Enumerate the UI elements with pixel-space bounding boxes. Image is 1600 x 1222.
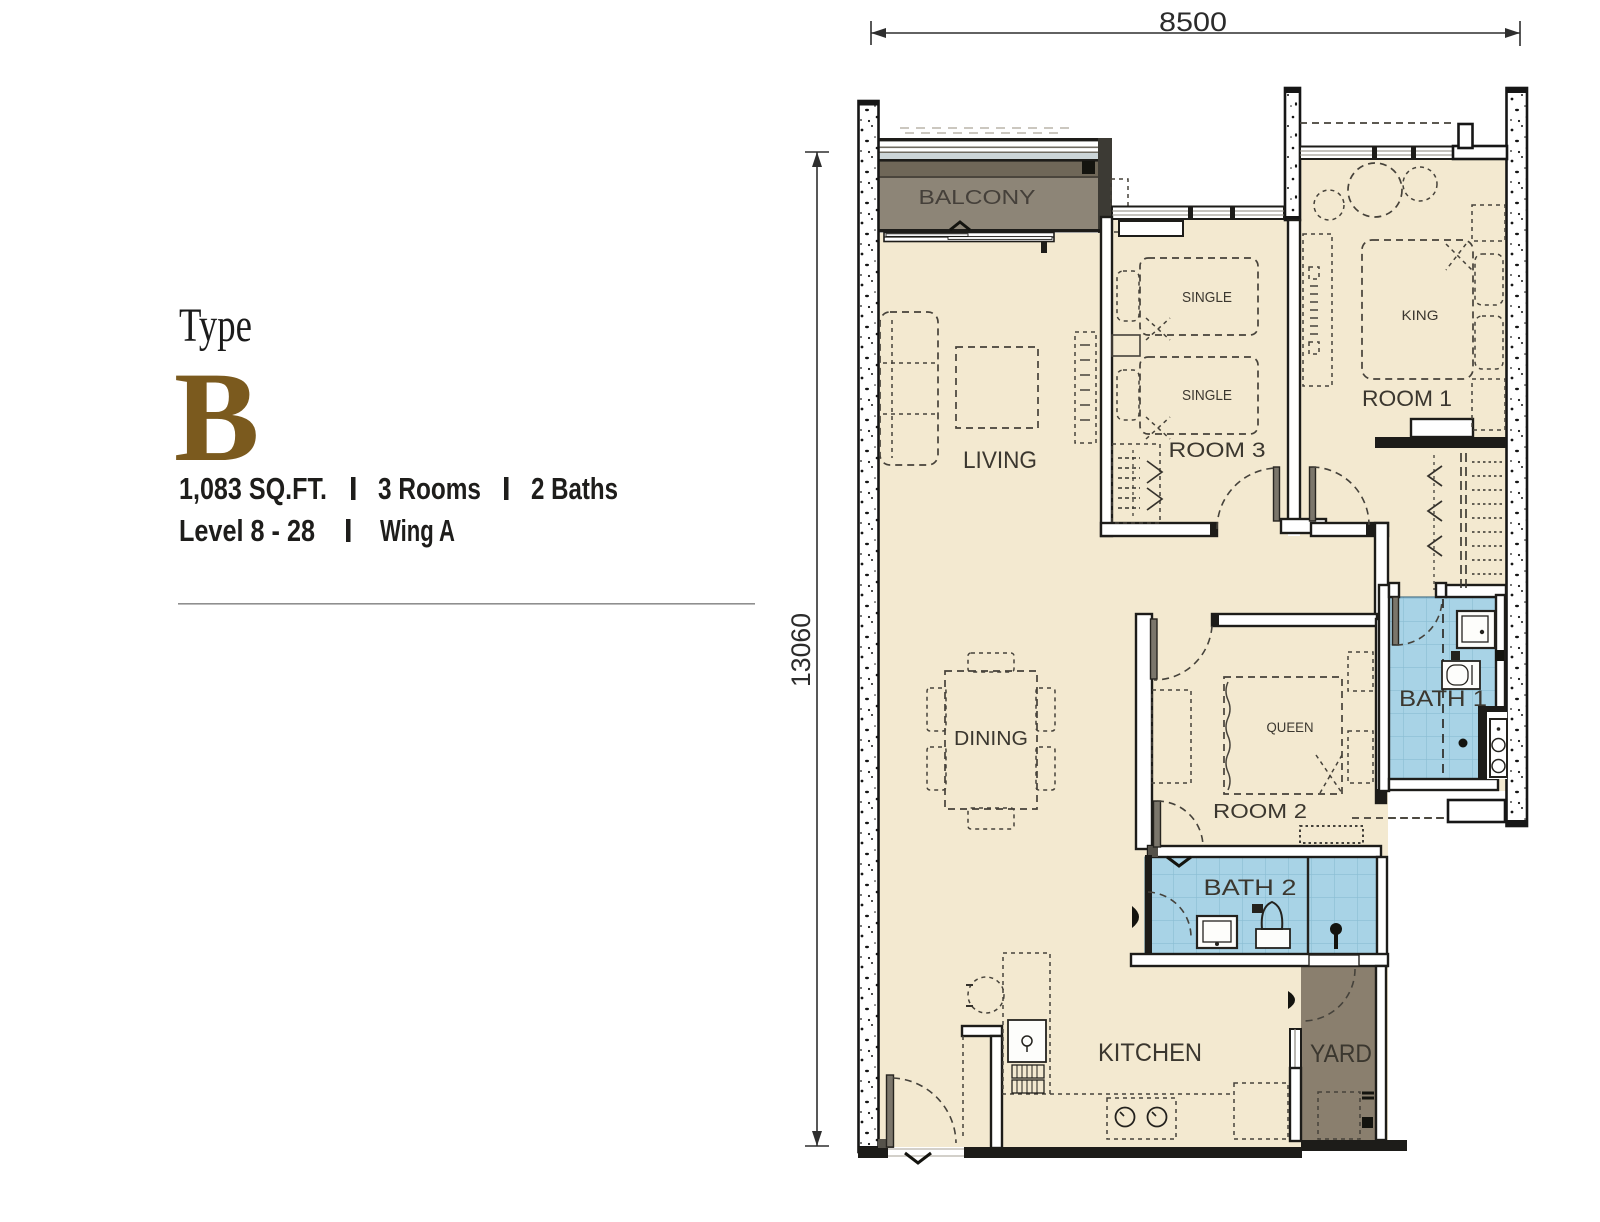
svg-text:YARD: YARD	[1310, 1040, 1372, 1068]
svg-text:DINING: DINING	[954, 728, 1028, 750]
svg-text:13060: 13060	[786, 613, 816, 687]
svg-text:KING: KING	[1402, 307, 1439, 323]
svg-text:BATH 2: BATH 2	[1204, 875, 1297, 900]
svg-text:Type: Type	[179, 299, 252, 352]
svg-text:Wing A: Wing A	[380, 513, 455, 548]
svg-text:LIVING: LIVING	[963, 447, 1037, 474]
svg-text:ROOM 1: ROOM 1	[1362, 386, 1452, 411]
svg-text:B: B	[174, 346, 259, 488]
svg-text:3 Rooms: 3 Rooms	[378, 471, 481, 506]
svg-text:BATH 1: BATH 1	[1399, 686, 1487, 711]
svg-text:1,083 SQ.FT.: 1,083 SQ.FT.	[179, 471, 327, 506]
svg-text:QUEEN: QUEEN	[1267, 720, 1314, 735]
svg-text:ROOM 3: ROOM 3	[1169, 439, 1266, 462]
svg-text:8500: 8500	[1159, 7, 1227, 37]
svg-text:BALCONY: BALCONY	[919, 187, 1036, 209]
svg-text:Level 8 - 28: Level 8 - 28	[179, 513, 315, 548]
svg-text:SINGLE: SINGLE	[1182, 289, 1232, 306]
svg-text:2 Baths: 2 Baths	[531, 471, 618, 506]
svg-text:SINGLE: SINGLE	[1182, 387, 1232, 404]
svg-text:ROOM 2: ROOM 2	[1213, 800, 1307, 823]
svg-text:KITCHEN: KITCHEN	[1098, 1039, 1202, 1067]
